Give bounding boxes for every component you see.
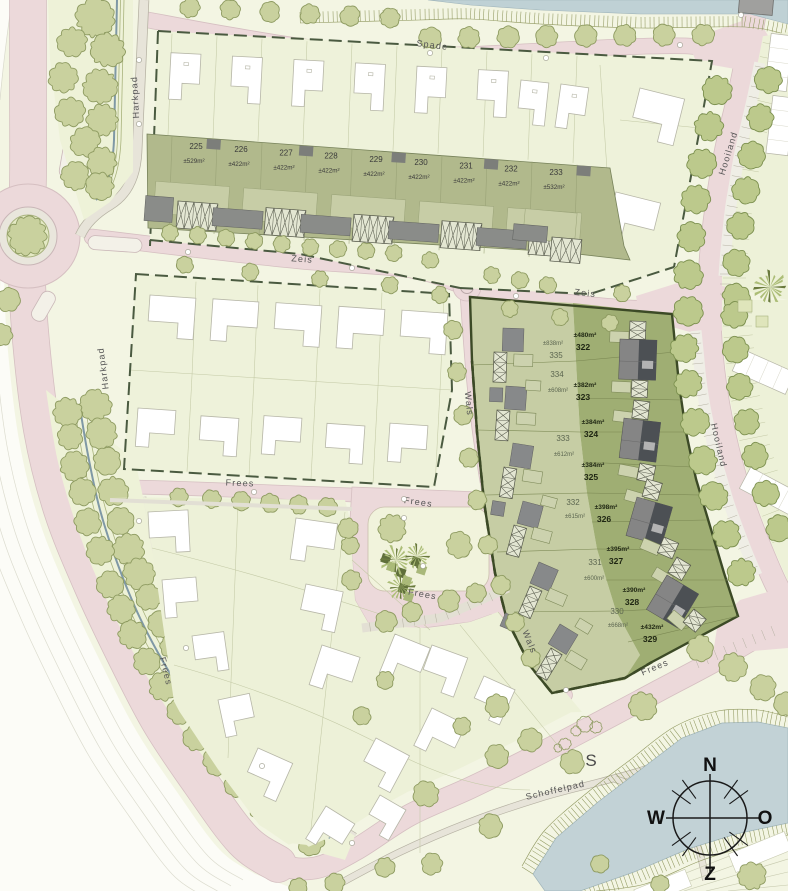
svg-text:N: N <box>703 755 717 776</box>
svg-text:±612m²: ±612m² <box>554 452 574 458</box>
svg-text:230: 230 <box>414 158 428 167</box>
svg-text:229: 229 <box>369 155 383 164</box>
svg-text:±529m²: ±529m² <box>183 158 204 165</box>
svg-text:±422m²: ±422m² <box>363 171 384 178</box>
svg-text:±382m²: ±382m² <box>574 382 597 389</box>
svg-text:228: 228 <box>324 152 338 161</box>
svg-text:±615m²: ±615m² <box>565 514 585 520</box>
svg-text:330: 330 <box>610 607 624 616</box>
svg-text:334: 334 <box>550 370 564 379</box>
svg-text:323: 323 <box>576 392 591 402</box>
svg-text:Frees: Frees <box>225 477 254 488</box>
svg-text:324: 324 <box>584 429 599 439</box>
svg-text:335: 335 <box>549 351 563 360</box>
svg-text:225: 225 <box>189 142 203 151</box>
svg-text:Z: Z <box>704 864 716 885</box>
svg-text:±384m²: ±384m² <box>582 462 605 469</box>
svg-text:329: 329 <box>643 634 658 644</box>
svg-text:±384m²: ±384m² <box>582 419 605 426</box>
svg-text:231: 231 <box>459 161 473 170</box>
svg-text:±395m²: ±395m² <box>607 546 630 553</box>
svg-text:±668m²: ±668m² <box>608 623 628 629</box>
svg-text:S: S <box>585 751 596 770</box>
svg-text:±422m²: ±422m² <box>318 168 339 175</box>
svg-text:±422m²: ±422m² <box>498 181 519 188</box>
svg-text:331: 331 <box>588 558 602 567</box>
svg-text:±422m²: ±422m² <box>273 165 294 172</box>
svg-text:±480m²: ±480m² <box>574 332 597 339</box>
svg-text:±838m²: ±838m² <box>543 341 563 347</box>
svg-text:226: 226 <box>234 145 248 154</box>
svg-text:332: 332 <box>566 498 580 507</box>
svg-text:326: 326 <box>597 514 612 524</box>
svg-text:W: W <box>647 808 665 829</box>
svg-text:232: 232 <box>504 165 518 174</box>
svg-text:±398m²: ±398m² <box>595 504 618 511</box>
svg-text:±422m²: ±422m² <box>408 174 429 181</box>
svg-text:±608m²: ±608m² <box>548 388 568 394</box>
svg-text:327: 327 <box>609 556 624 566</box>
svg-text:333: 333 <box>556 434 570 443</box>
svg-text:322: 322 <box>576 342 591 352</box>
svg-text:O: O <box>758 808 773 829</box>
svg-text:325: 325 <box>584 472 599 482</box>
svg-text:227: 227 <box>279 149 293 158</box>
svg-text:±600m²: ±600m² <box>584 576 604 582</box>
svg-text:±532m²: ±532m² <box>543 184 564 191</box>
svg-text:Zeis: Zeis <box>291 253 313 264</box>
svg-text:±432m²: ±432m² <box>641 624 664 631</box>
svg-text:±422m²: ±422m² <box>453 177 474 184</box>
svg-text:328: 328 <box>625 597 640 607</box>
svg-text:±390m²: ±390m² <box>623 587 646 594</box>
svg-text:±422m²: ±422m² <box>228 161 249 168</box>
svg-text:233: 233 <box>549 168 563 177</box>
